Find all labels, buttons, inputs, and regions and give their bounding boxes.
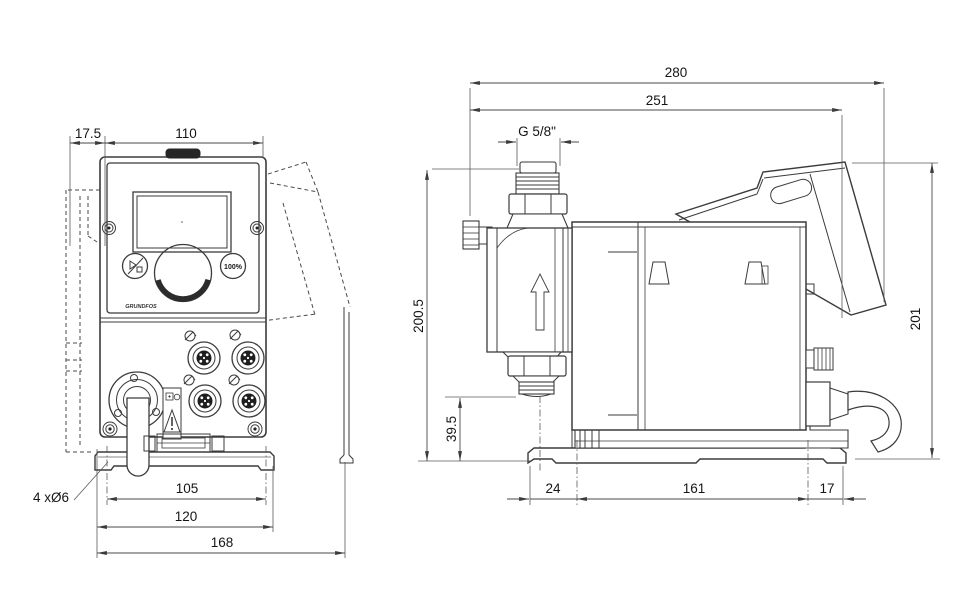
coupling-nut	[509, 194, 567, 214]
discharge-thread-fitting	[507, 162, 568, 228]
side-view: 280 251 G 5/8" 200.5 39.5	[411, 65, 940, 505]
m12-connector	[189, 385, 221, 417]
m12-connector	[232, 342, 264, 374]
dim-text-hole-spacing: 105	[176, 481, 199, 496]
power-cable	[127, 398, 149, 476]
dim-text-suction-height: 39.5	[444, 416, 459, 442]
percent-button-label: 100%	[224, 264, 243, 271]
brand-logo: GRUNDFOS	[125, 304, 157, 310]
pump-body-side	[572, 222, 814, 430]
dim-text-length-to-hood: 251	[646, 93, 669, 108]
hood-foot-front	[340, 455, 353, 463]
dim-text-foot-center: 161	[683, 481, 706, 496]
dim-text-height-right: 201	[908, 308, 923, 331]
m12-connector	[188, 342, 220, 374]
dim-text-width-top: 110	[175, 126, 197, 141]
holes-callout-text: 4 xØ6	[33, 490, 69, 505]
suction-thread-fitting	[503, 352, 566, 397]
dimensional-drawing: 100% GRUNDFOS	[0, 0, 976, 600]
dim-text-offset: 17.5	[75, 126, 101, 141]
m12-connector	[233, 385, 265, 417]
dim-text-plate-width: 120	[175, 509, 198, 524]
dim-thread-callout: G 5/8"	[498, 124, 579, 166]
warning-label	[163, 388, 181, 439]
dim-text-foot-right: 17	[819, 481, 834, 496]
power-cable-side	[848, 391, 901, 452]
top-cap	[166, 149, 200, 158]
dim-text-foot-left: 24	[545, 481, 561, 496]
dim-text-height-total: 200.5	[411, 299, 426, 333]
dim-side-suction-height: 39.5	[444, 397, 516, 461]
dosing-head	[463, 162, 572, 472]
dim-text-thread: G 5/8"	[518, 124, 556, 139]
dim-text-overall-length: 280	[665, 65, 688, 80]
drawing-svg: 100% GRUNDFOS	[0, 0, 976, 600]
hidden-head-outline	[66, 190, 100, 452]
dim-text-overall-width: 168	[211, 535, 234, 550]
mounting-foot-front	[95, 452, 274, 470]
hidden-hood-outline	[262, 162, 353, 463]
front-view: 100% GRUNDFOS	[33, 126, 353, 558]
dim-front-overall-width: 168	[97, 462, 345, 558]
cable-gland-upper	[806, 348, 833, 370]
